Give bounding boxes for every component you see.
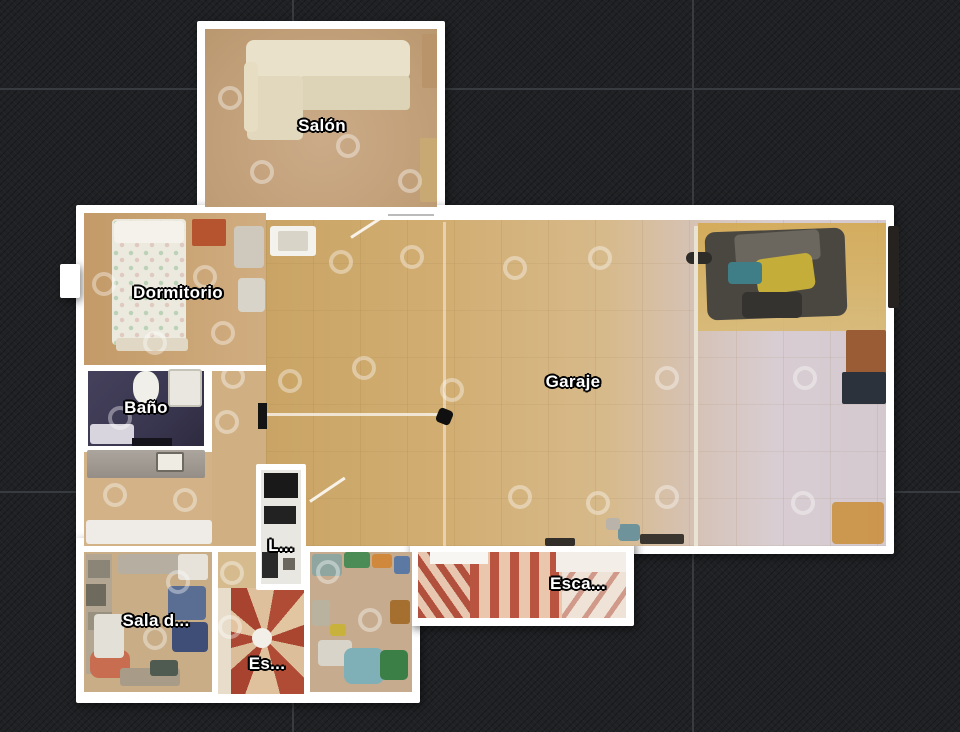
scan-point[interactable] — [793, 366, 817, 390]
stairs-landing-top — [556, 552, 626, 572]
garage-sink-basin — [278, 231, 308, 251]
scan-point[interactable] — [329, 250, 353, 274]
sofa-seat — [300, 76, 410, 110]
scan-point[interactable] — [215, 410, 239, 434]
scan-point[interactable] — [218, 615, 242, 639]
scan-point[interactable] — [503, 256, 527, 280]
scan-point[interactable] — [173, 488, 197, 512]
hall-counter — [87, 450, 205, 478]
scan-point[interactable] — [398, 169, 422, 193]
spiral-stair-hub — [252, 628, 272, 648]
hall-cabinet — [86, 520, 212, 544]
shower — [168, 369, 202, 407]
garage-floor-line — [266, 413, 438, 416]
scan-point[interactable] — [250, 160, 274, 184]
bath-mat — [132, 438, 172, 446]
garage-orange-patch — [832, 502, 884, 544]
scan-point[interactable] — [440, 378, 464, 402]
storage-object — [390, 600, 410, 624]
room-label-sala: Sala d... — [123, 611, 190, 631]
scan-point[interactable] — [316, 560, 340, 584]
scan-point[interactable] — [791, 491, 815, 515]
garage-wall-mark — [545, 538, 575, 546]
scan-point[interactable] — [166, 570, 190, 594]
garage-wall-mark — [640, 534, 684, 544]
scan-point[interactable] — [103, 483, 127, 507]
garage-small-object — [618, 524, 640, 541]
garage-dark-box — [842, 372, 886, 404]
room-label-caracol: Es... — [249, 654, 285, 674]
sofa-armrest — [244, 62, 258, 132]
dorm-desk — [238, 278, 265, 312]
garage-divider-wall — [694, 226, 698, 546]
garage-small-object — [606, 518, 620, 530]
scan-point[interactable] — [278, 369, 302, 393]
wall-stub-window — [60, 264, 80, 298]
sala-object — [94, 614, 124, 658]
room-label-garaje: Garaje — [546, 372, 601, 392]
scan-point[interactable] — [336, 134, 360, 158]
room-label-dormitorio: Dormitorio — [133, 283, 223, 303]
floorplan: Salón Dormitorio Baño Garaje Esca... L..… — [0, 0, 960, 732]
scan-point[interactable] — [211, 321, 235, 345]
salon-shelf — [422, 34, 437, 88]
storage-object — [380, 650, 408, 680]
scan-point[interactable] — [358, 608, 382, 632]
scan-point[interactable] — [655, 485, 679, 509]
scan-point[interactable] — [588, 246, 612, 270]
storage-object — [372, 554, 392, 568]
scan-point[interactable] — [143, 331, 167, 355]
storage-object — [394, 556, 410, 574]
laundry-appliance — [264, 506, 296, 524]
scan-point[interactable] — [400, 245, 424, 269]
sala-object — [150, 660, 178, 676]
scan-point[interactable] — [655, 366, 679, 390]
storage-object — [312, 600, 330, 626]
stairs-landing-top — [430, 552, 488, 564]
floorplan-viewport: Salón Dormitorio Baño Garaje Esca... L..… — [0, 0, 960, 732]
laundry-object — [283, 558, 295, 570]
scan-point[interactable] — [508, 485, 532, 509]
scan-point[interactable] — [221, 365, 245, 389]
dorm-chair — [234, 226, 264, 268]
laundry-closet — [264, 473, 298, 498]
room-label-escalera: Esca... — [550, 574, 606, 594]
sofa-back — [246, 40, 410, 80]
storage-object — [344, 552, 370, 568]
garage-shelf — [846, 330, 886, 376]
motorcycle-wheel — [686, 252, 712, 264]
storage-object — [344, 648, 384, 684]
scan-point[interactable] — [92, 272, 116, 296]
scan-point[interactable] — [586, 491, 610, 515]
door-marker — [388, 214, 434, 216]
spiral-landing — [218, 588, 231, 694]
storage-object — [330, 624, 346, 636]
salon-cabinet — [420, 138, 437, 202]
room-label-lavadero: L... — [268, 536, 294, 556]
sala-object — [88, 560, 110, 578]
scan-point[interactable] — [352, 356, 376, 380]
room-label-bano: Baño — [124, 398, 168, 418]
bed-pillow — [114, 221, 184, 243]
motorcycle-tank — [728, 262, 762, 284]
nightstand — [192, 219, 226, 246]
scan-point[interactable] — [218, 86, 242, 110]
sala-object — [86, 584, 106, 606]
motorcycle-lower — [742, 292, 802, 318]
exterior-door-leaf — [888, 226, 899, 308]
scan-point[interactable] — [220, 561, 244, 585]
room-label-salon: Salón — [298, 116, 346, 136]
door-marker — [258, 403, 267, 429]
hall-counter-box — [156, 452, 184, 472]
